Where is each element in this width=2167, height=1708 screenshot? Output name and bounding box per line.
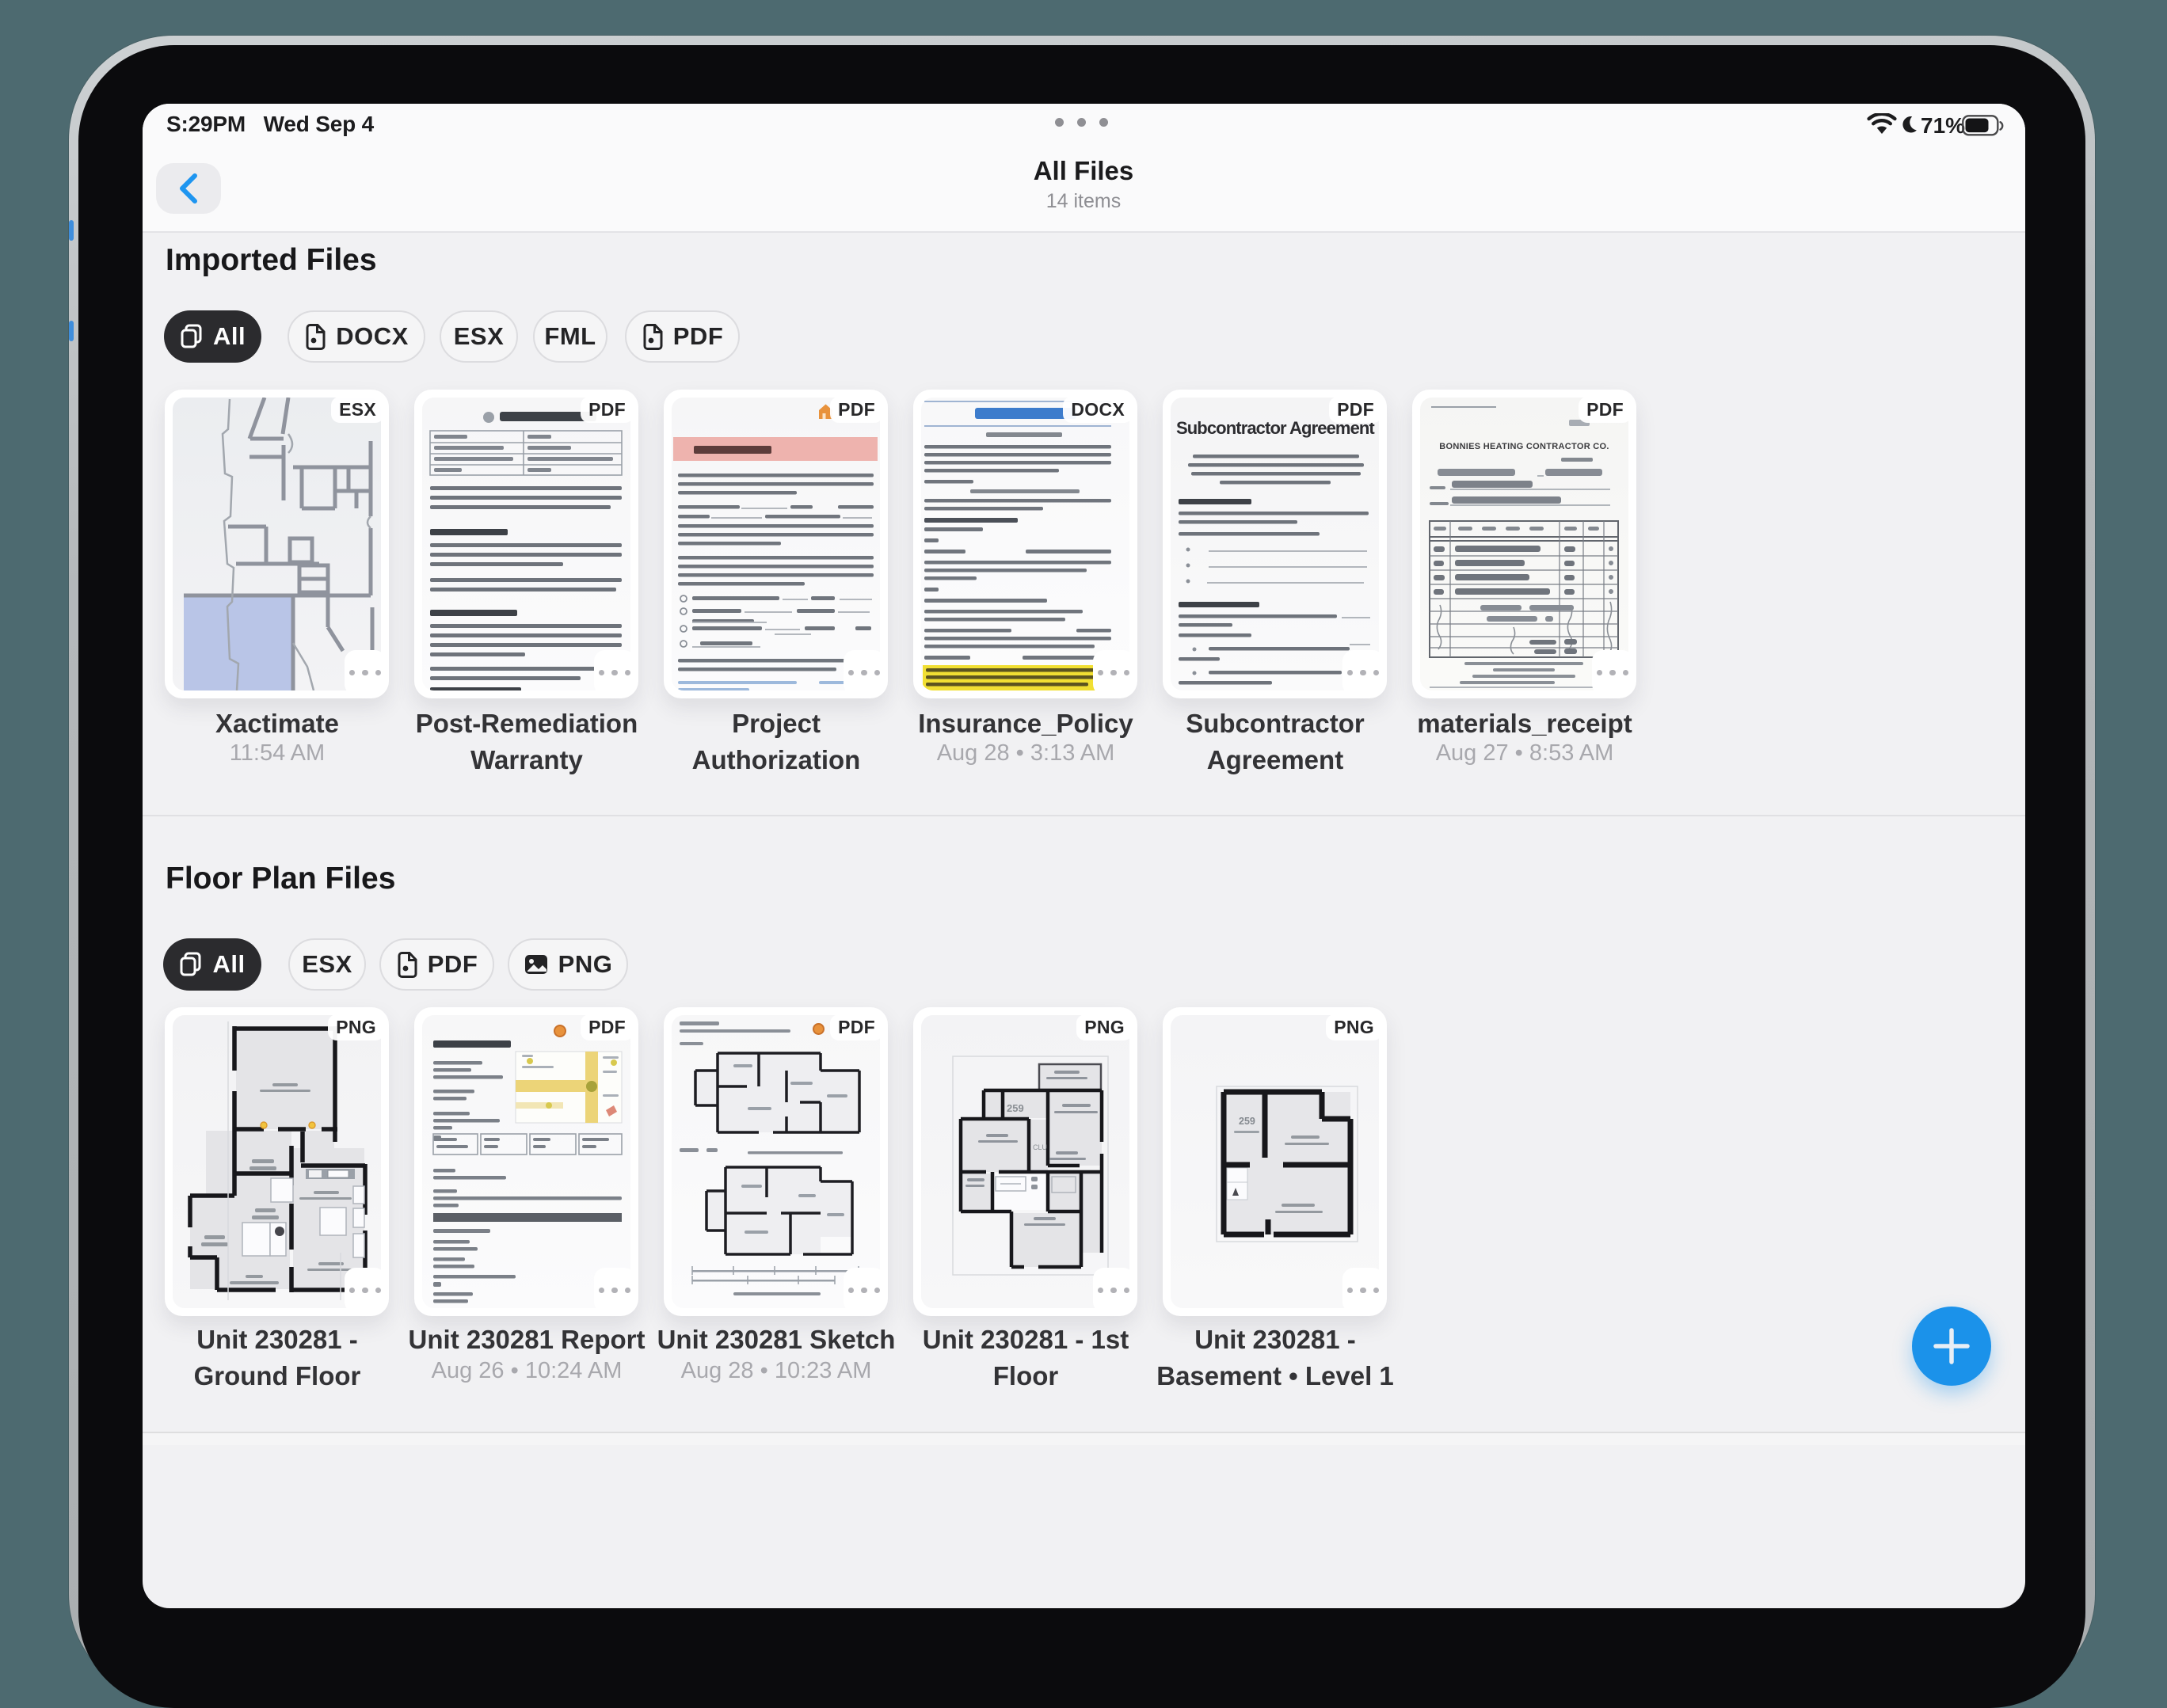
svg-text:259: 259 <box>1007 1102 1024 1114</box>
svg-text:259: 259 <box>1239 1116 1255 1127</box>
svg-text:CLU: CLU <box>1033 1143 1047 1151</box>
